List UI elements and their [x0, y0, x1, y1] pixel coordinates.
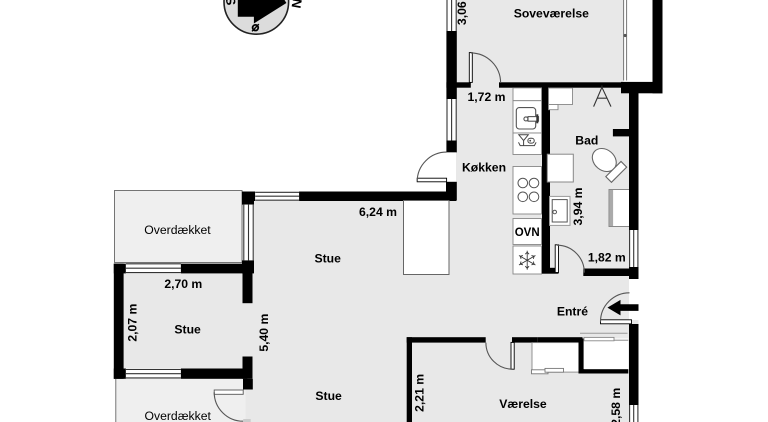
- svg-text:3,94 m: 3,94 m: [571, 187, 585, 225]
- svg-text:OVN: OVN: [515, 227, 540, 239]
- svg-text:Overdækket: Overdækket: [144, 223, 211, 237]
- svg-text:1,72 m: 1,72 m: [468, 90, 506, 104]
- svg-text:Entré: Entré: [557, 305, 588, 319]
- svg-text:2,70 m: 2,70 m: [164, 277, 202, 291]
- svg-text:N: N: [289, 0, 305, 9]
- svg-text:2,58 m: 2,58 m: [609, 388, 623, 422]
- svg-text:Stue: Stue: [174, 323, 201, 337]
- svg-text:Bad: Bad: [575, 134, 598, 148]
- svg-text:Værelse: Værelse: [499, 397, 547, 411]
- svg-text:Soveværelse: Soveværelse: [514, 6, 589, 20]
- svg-text:5,40 m: 5,40 m: [257, 314, 271, 352]
- svg-text:Køkken: Køkken: [462, 161, 506, 175]
- svg-text:2,21 m: 2,21 m: [412, 374, 426, 412]
- svg-text:Stue: Stue: [314, 251, 341, 265]
- svg-text:Overdækket: Overdækket: [145, 409, 212, 422]
- svg-text:1,82 m: 1,82 m: [588, 251, 626, 265]
- svg-text:Stue: Stue: [315, 389, 342, 403]
- svg-text:2,07 m: 2,07 m: [125, 304, 139, 342]
- svg-text:6,24 m: 6,24 m: [359, 205, 397, 219]
- svg-text:3,06 m: 3,06 m: [455, 0, 469, 25]
